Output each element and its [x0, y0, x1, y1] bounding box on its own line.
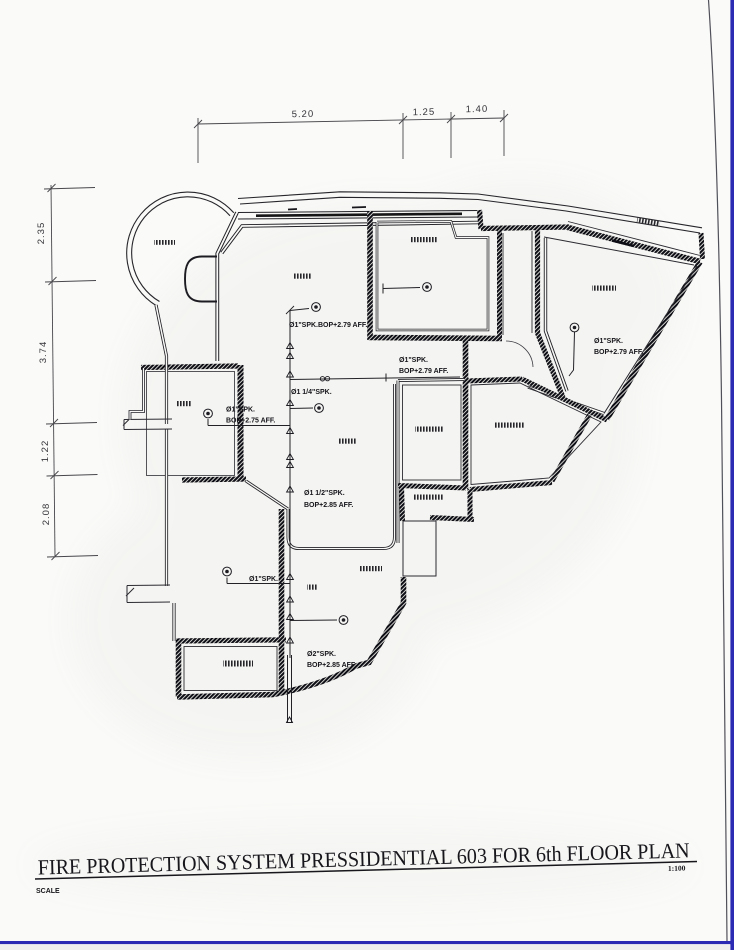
svg-text:3.74: 3.74 — [38, 341, 49, 364]
svg-text:2.35: 2.35 — [36, 222, 47, 245]
svg-text:Ø1"SPK.: Ø1"SPK. — [226, 407, 255, 414]
svg-text:1.22: 1.22 — [40, 440, 51, 463]
svg-text:Ø2"SPK.: Ø2"SPK. — [307, 651, 336, 658]
svg-text:1:100: 1:100 — [668, 864, 686, 873]
svg-text:Ø1 1/4"SPK.: Ø1 1/4"SPK. — [291, 389, 332, 396]
svg-text:5.20: 5.20 — [292, 109, 315, 120]
svg-text:BOP+2.79 AFF.: BOP+2.79 AFF. — [594, 349, 643, 356]
svg-text:BOP+2.85 AFF.: BOP+2.85 AFF. — [307, 662, 356, 669]
svg-text:Ø1"SPK.: Ø1"SPK. — [594, 338, 623, 345]
svg-text:1.40: 1.40 — [466, 104, 489, 115]
svg-text:Ø1"SPK.: Ø1"SPK. — [249, 576, 278, 583]
svg-text:Ø1"SPK.BOP+2.79 AFF.: Ø1"SPK.BOP+2.79 AFF. — [289, 322, 367, 329]
svg-text:BOP+2.79 AFF.: BOP+2.79 AFF. — [399, 368, 448, 375]
svg-text:Ø1 1/2"SPK.: Ø1 1/2"SPK. — [304, 490, 345, 497]
svg-text:1.25: 1.25 — [413, 107, 436, 118]
svg-text:Ø1"SPK.: Ø1"SPK. — [399, 357, 428, 364]
svg-text:SCALE: SCALE — [36, 888, 60, 895]
svg-text:BOP+2.85 AFF.: BOP+2.85 AFF. — [304, 502, 353, 509]
svg-text:2.08: 2.08 — [41, 503, 52, 526]
svg-text:BOP+2.75 AFF.: BOP+2.75 AFF. — [226, 418, 275, 425]
